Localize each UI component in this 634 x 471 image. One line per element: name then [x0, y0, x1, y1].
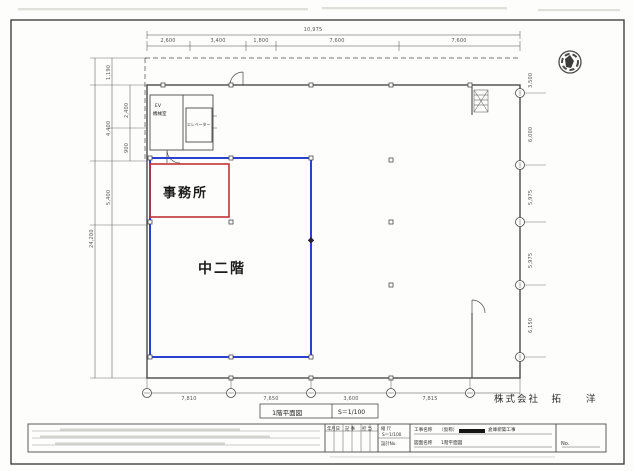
dim-left-seg-2: 4,400 — [106, 121, 112, 136]
dim-bottom-seg-3: 3,600 — [331, 396, 371, 402]
dim-right-seg-2: 6,000 — [528, 127, 534, 142]
sheet-no-label: No. — [561, 441, 569, 447]
project-name-redaction — [459, 429, 485, 434]
dim-right-seg-5: 6,150 — [528, 318, 534, 333]
ev-room-label-line2: 機械室 — [153, 111, 167, 117]
dim-bottom-seg-1: 7,810 — [169, 396, 209, 402]
elevator-label: エレベーター — [187, 122, 210, 128]
dim-top-seg-5: 7,600 — [444, 38, 474, 44]
dim-left-seg-1: 1,190 — [106, 65, 112, 80]
rev-header-date: 年月日 — [327, 426, 340, 432]
left-dim-lines — [90, 58, 147, 378]
dim-bottom-seg-4: 7,815 — [410, 396, 450, 402]
project-name-prefix: （仮称） — [439, 427, 457, 433]
office-room-label: 事務所 — [163, 182, 208, 201]
dim-right-seg-1: 3,500 — [528, 73, 534, 88]
dim-right-seg-4: 5,975 — [528, 253, 534, 268]
dim-right-seg-3: 5,975 — [528, 190, 534, 205]
mezzanine-room-label: 中二階 — [198, 258, 246, 278]
dim-left-seg-5: 5,400 — [106, 190, 112, 205]
dim-top-seg-1: 2,600 — [153, 38, 183, 44]
dim-left-seg-3: 2,400 — [124, 103, 130, 118]
bottom-dim-line — [147, 378, 520, 397]
dashed-eave-line — [145, 58, 520, 162]
company-name: 株式会社 拓 洋 — [494, 391, 598, 405]
rev-header-note: 記 事 — [345, 426, 355, 432]
dim-top-seg-3: 1,800 — [246, 38, 276, 44]
north-compass-icon — [559, 51, 581, 73]
drawing-name-label: 図面名称 — [414, 440, 432, 446]
ladder-hatch — [474, 90, 488, 112]
dim-left-overall: 24,200 — [89, 229, 95, 248]
dim-left-seg-4: 900 — [124, 143, 130, 153]
dim-top-overall: 10,975 — [283, 27, 343, 33]
ev-room-label-line1: EV — [155, 104, 161, 110]
dim-top-seg-2: 3,400 — [203, 38, 233, 44]
project-name-label: 工事名称 — [414, 427, 432, 433]
project-name-suffix: 倉庫新築工事 — [488, 427, 516, 433]
drawing-name-value: 1階平面図 — [441, 440, 462, 446]
drawing-sheet: 10,975 2,600 3,400 1,800 7,600 7,600 24,… — [0, 0, 634, 471]
title-block-lines — [28, 424, 606, 452]
caption-title: 1階平面図 — [272, 407, 302, 417]
grid-diamond-marker — [308, 237, 314, 243]
rev-header-charge: 担 当 — [362, 426, 372, 432]
design-no-label: 設計No. — [381, 441, 397, 447]
scale-value: S＝1/100 — [382, 432, 401, 438]
dim-top-seg-4: 7,600 — [322, 38, 352, 44]
dim-bottom-seg-2: 7,650 — [251, 396, 291, 402]
caption-scale: S＝1/100 — [338, 407, 365, 416]
building-perimeter-wall — [147, 85, 520, 378]
